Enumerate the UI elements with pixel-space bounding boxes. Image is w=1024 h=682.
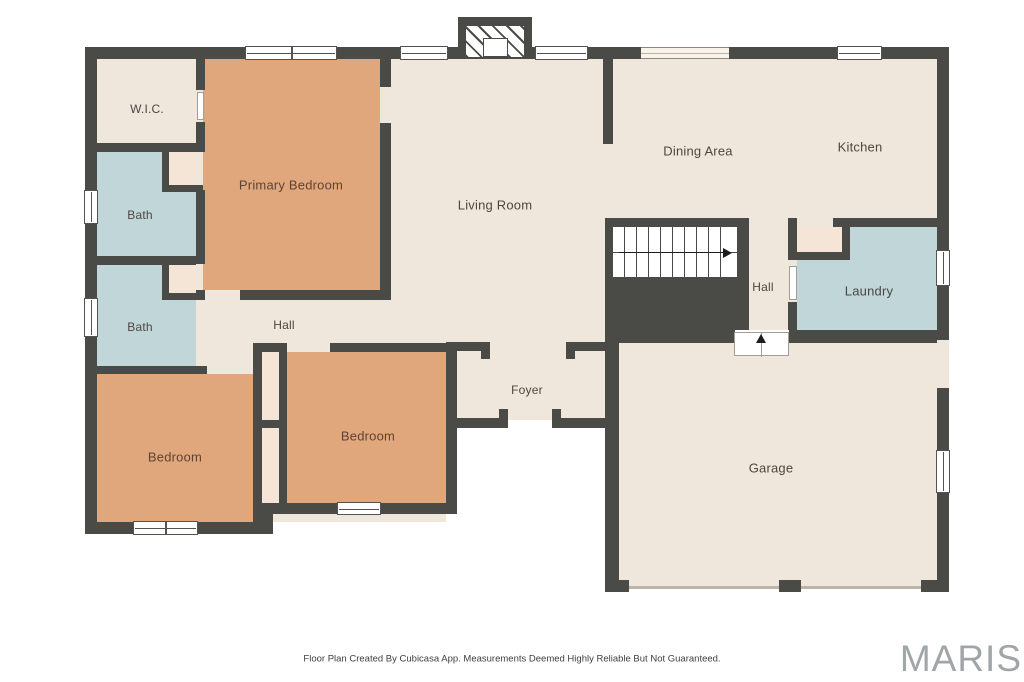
wall-nook-lower-bottom bbox=[162, 293, 203, 300]
window-bedroom-left-bottom bbox=[133, 521, 198, 535]
wall-garage-top-right bbox=[789, 330, 949, 343]
wall-laundry-top bbox=[833, 218, 937, 227]
wall-bath-divider bbox=[85, 256, 196, 265]
room-label-wic: W.I.C. bbox=[130, 102, 164, 116]
room-fill-bedroom-left bbox=[97, 374, 253, 522]
garage-door-line-right bbox=[801, 586, 921, 589]
wall-bedroom-center-top-right bbox=[330, 343, 446, 352]
wall-laundry-closet-bottom bbox=[788, 252, 850, 260]
window-garage-right bbox=[936, 450, 950, 493]
wall-nook-upper-bottom bbox=[162, 185, 203, 192]
shower-nook-bath-upper bbox=[169, 151, 196, 185]
room-label-hall-bedroom-wing: Hall bbox=[273, 318, 294, 332]
wall-primary-bedroom-bottom bbox=[240, 290, 391, 300]
wall-primary-bedroom-right-a bbox=[380, 59, 391, 87]
wall-foyer-bottom-left bbox=[446, 418, 508, 428]
front-door-stub-right bbox=[552, 409, 561, 419]
window-living-right-of-chimney bbox=[535, 46, 588, 60]
wall-wic-right-a bbox=[196, 59, 205, 90]
room-label-bedroom-center: Bedroom bbox=[341, 429, 395, 444]
door-leaf-laundry bbox=[789, 266, 797, 300]
garage-entry-arrow-icon bbox=[756, 334, 766, 343]
garage-bottom-stub-middle bbox=[779, 580, 801, 592]
window-bath-upper-left bbox=[84, 190, 98, 224]
garage-bottom-stub-left bbox=[605, 580, 629, 592]
closet-laundry bbox=[797, 227, 842, 252]
wall-garage-left bbox=[605, 330, 619, 592]
stair-direction-line bbox=[619, 252, 724, 253]
wall-bedroom-center-left bbox=[279, 352, 287, 503]
wall-laundry-closet-right bbox=[842, 227, 850, 252]
foyer-stub-right bbox=[566, 351, 575, 359]
chimney-flue bbox=[483, 38, 508, 57]
wall-bedroom-center-right bbox=[446, 343, 457, 514]
window-divider bbox=[165, 522, 167, 534]
stairs bbox=[613, 227, 737, 277]
wall-wic-right-b bbox=[196, 122, 205, 152]
room-label-garage: Garage bbox=[749, 461, 794, 476]
room-label-bath-lower: Bath bbox=[127, 320, 153, 334]
window-living-left-of-chimney bbox=[400, 46, 448, 60]
room-label-primary-bedroom: Primary Bedroom bbox=[239, 178, 343, 193]
door-leaf-wic bbox=[197, 92, 204, 120]
room-label-dining-area: Dining Area bbox=[663, 144, 732, 159]
window-bedroom-center-bottom bbox=[337, 502, 381, 515]
wall-exterior-left bbox=[85, 47, 97, 526]
room-label-bedroom-left: Bedroom bbox=[148, 450, 202, 465]
wall-step-connector bbox=[261, 503, 273, 534]
wall-closet-left bbox=[253, 343, 262, 522]
window-dining-slider bbox=[641, 47, 729, 59]
front-door-stub-left bbox=[499, 409, 508, 419]
stair-direction-arrow-icon bbox=[723, 248, 732, 258]
wall-dining-stub bbox=[603, 59, 613, 144]
window-laundry-right bbox=[936, 250, 950, 286]
room-label-living-room: Living Room bbox=[458, 198, 532, 213]
room-label-kitchen: Kitchen bbox=[838, 140, 883, 155]
garage-door-line-left bbox=[629, 586, 779, 589]
window-divider bbox=[291, 47, 293, 59]
room-label-laundry: Laundry bbox=[845, 284, 893, 299]
floor-plan: W.I.C. Primary Bedroom Bath Bath Living … bbox=[0, 0, 1024, 682]
garage-side-door-opening bbox=[937, 340, 949, 388]
wall-bath-lower-bottom bbox=[85, 366, 207, 374]
room-label-bath-upper: Bath bbox=[127, 208, 153, 222]
window-kitchen-top bbox=[837, 46, 882, 60]
wall-foyer-top-right bbox=[566, 342, 607, 351]
wall-foyer-top-left bbox=[446, 342, 490, 351]
wall-bath-right bbox=[196, 190, 205, 264]
window-bath-lower-left bbox=[84, 298, 98, 337]
wall-laundry-left-lower bbox=[788, 302, 797, 330]
wall-primary-bedroom-right-b bbox=[380, 123, 391, 300]
room-label-foyer: Foyer bbox=[511, 383, 543, 397]
garage-bottom-stub-right bbox=[921, 580, 949, 592]
shower-nook-bath-lower bbox=[169, 264, 196, 293]
disclaimer-text: Floor Plan Created By Cubicasa App. Meas… bbox=[303, 654, 720, 665]
wall-garage-top-left bbox=[605, 330, 735, 343]
window-primary-bedroom-top bbox=[245, 46, 337, 60]
wall-exterior-right bbox=[937, 47, 949, 592]
room-fill-laundry-upper bbox=[850, 227, 937, 260]
room-label-hall-upper: Hall bbox=[752, 280, 773, 294]
room-fill-primary-bedroom bbox=[203, 59, 380, 290]
garage-entry-door bbox=[734, 332, 789, 356]
wall-wic-bottom bbox=[85, 143, 196, 152]
room-fill-bedroom-center bbox=[287, 352, 446, 503]
maris-logo: MARIS bbox=[900, 638, 1022, 680]
foyer-stub-left bbox=[481, 351, 490, 359]
